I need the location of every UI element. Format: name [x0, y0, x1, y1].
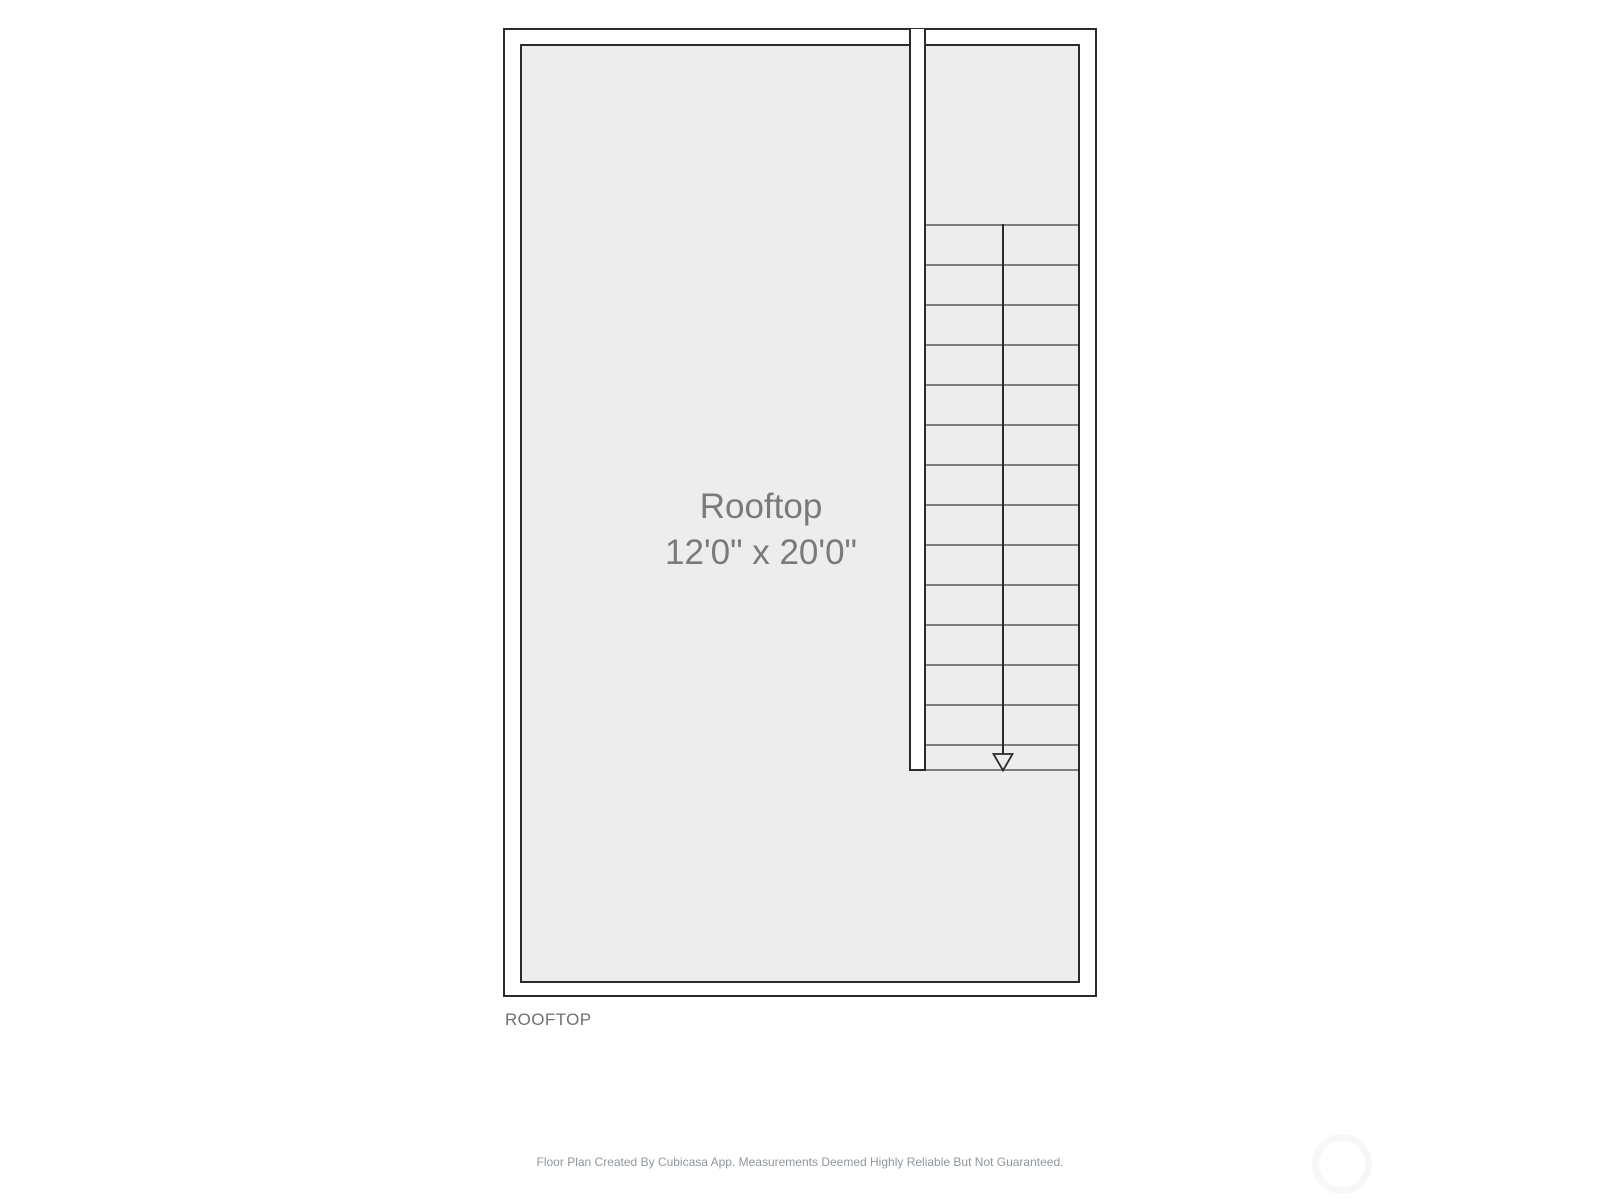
- room-label: Rooftop 12'0" x 20'0": [561, 484, 961, 576]
- floor-plan-page: Rooftop 12'0" x 20'0" ROOFTOP Floor Plan…: [0, 0, 1600, 1200]
- room-dimensions: 12'0" x 20'0": [561, 530, 961, 576]
- staircase: [926, 44, 1078, 771]
- floor-label: ROOFTOP: [505, 1010, 592, 1030]
- stair-down-arrow-icon: [992, 753, 1014, 772]
- stair-wall: [909, 29, 926, 771]
- stair-center-line: [1002, 224, 1004, 754]
- watermark-circle-icon: [1312, 1134, 1372, 1194]
- room-name: Rooftop: [561, 484, 961, 530]
